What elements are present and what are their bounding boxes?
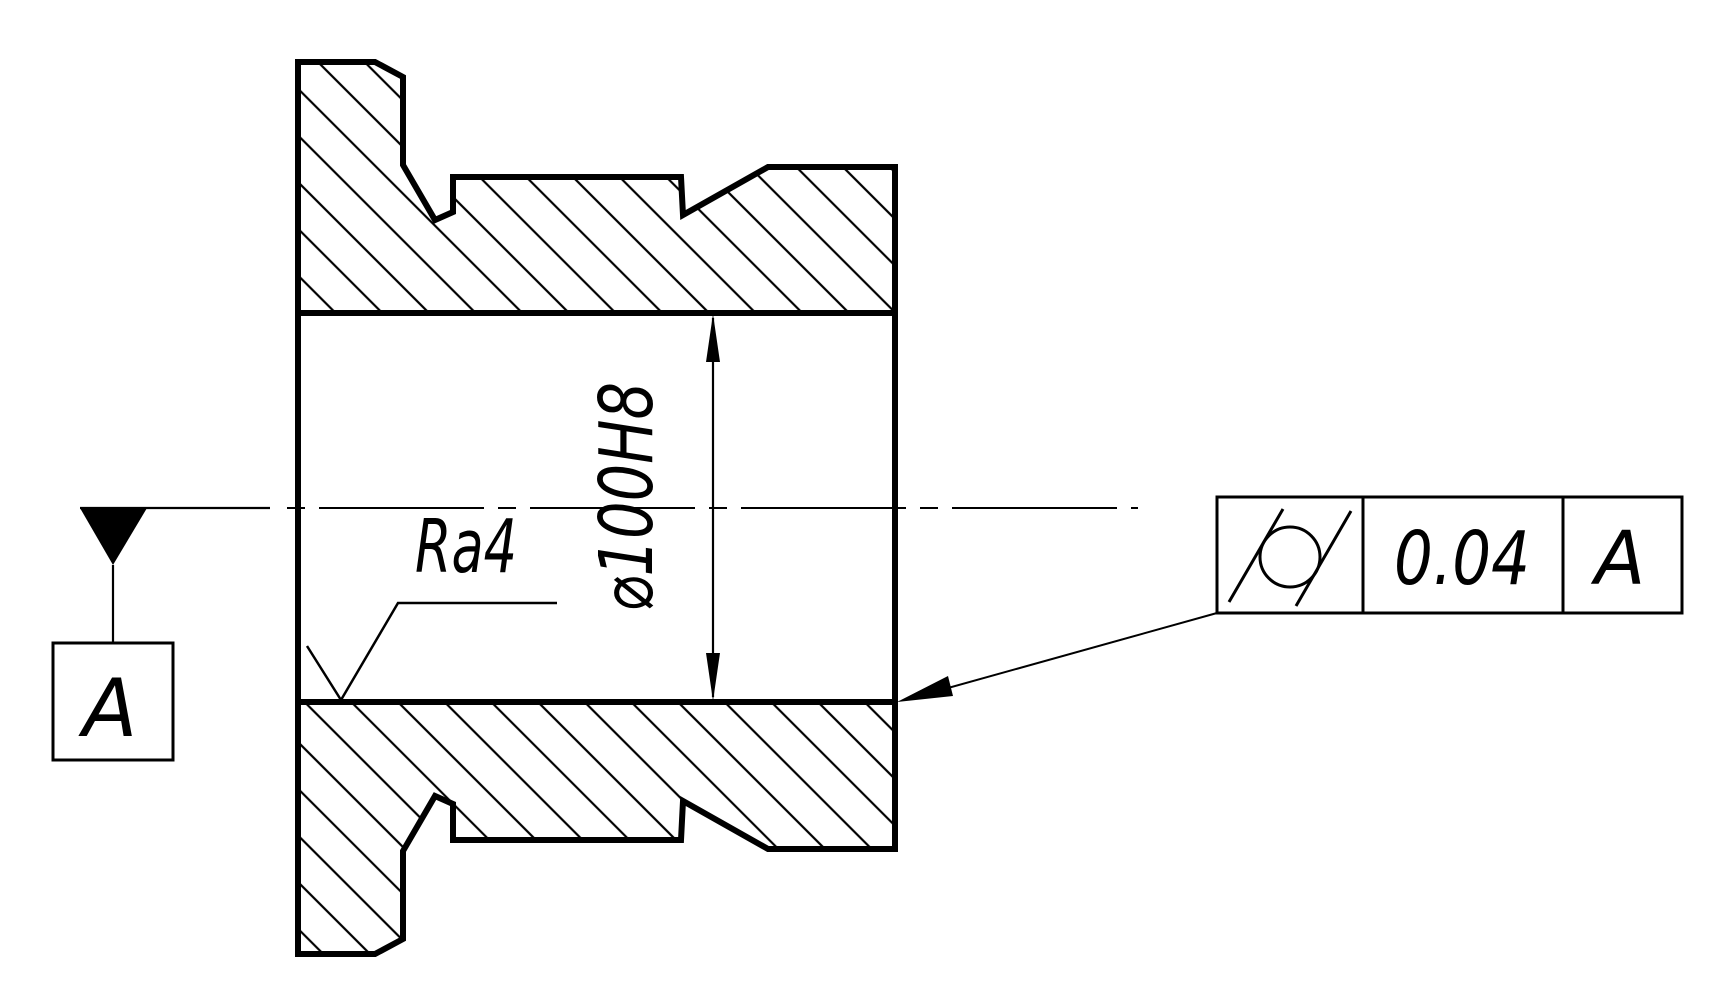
dimension-label: ⌀100H8 xyxy=(584,382,670,612)
datum-label: A xyxy=(78,662,138,755)
engineering-drawing: ⌀100H8 Ra4 A 0.04 A xyxy=(0,0,1715,984)
roughness-label: Ra4 xyxy=(415,504,517,590)
engineering-drawing-sheet: ⌀100H8 Ra4 A 0.04 A xyxy=(0,0,1715,984)
fcf-tolerance-value: 0.04 xyxy=(1394,516,1530,602)
fcf-datum-reference: A xyxy=(1591,516,1646,602)
